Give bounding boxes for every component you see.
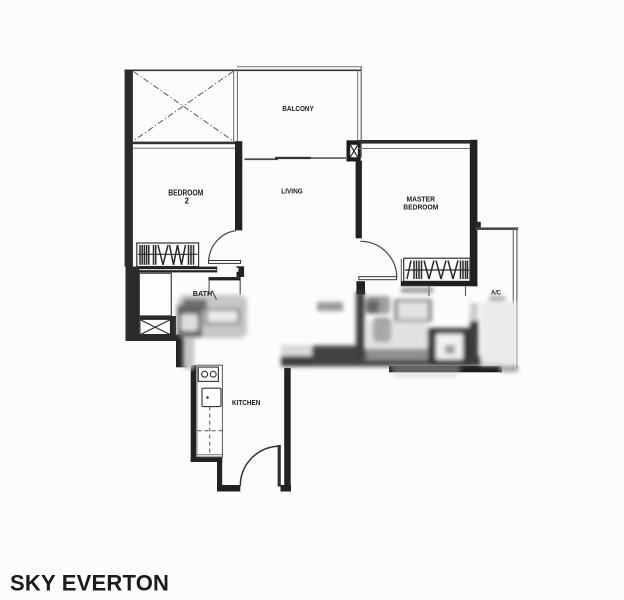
svg-text:BALCONY: BALCONY [282,104,314,113]
svg-text:BEDROOM: BEDROOM [403,203,438,212]
svg-text:2: 2 [185,196,190,205]
svg-text:LIVING: LIVING [281,186,303,195]
svg-text:A/C: A/C [491,290,501,297]
svg-text:BATH: BATH [193,289,213,298]
svg-text:SKY EVERTON: SKY EVERTON [10,571,169,596]
svg-text:KITCHEN: KITCHEN [232,398,261,407]
